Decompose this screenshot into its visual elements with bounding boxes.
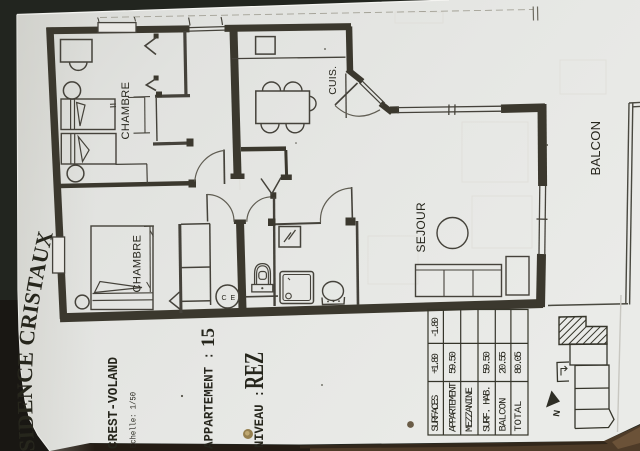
- svg-text:APPARTEMENT :: APPARTEMENT :: [202, 352, 217, 449]
- svg-text:SURFACES: SURFACES: [430, 395, 442, 432]
- svg-text:CHAMBRE: CHAMBRE: [131, 235, 143, 293]
- svg-text:SEJOUR: SEJOUR: [414, 202, 428, 253]
- svg-text:15: 15: [198, 328, 219, 347]
- svg-text:+1.80: +1.80: [430, 353, 442, 374]
- svg-text:MEZZANINE: MEZZANINE: [464, 387, 476, 432]
- svg-text:TOTAL: TOTAL: [513, 401, 525, 432]
- svg-text:REZ: REZ: [239, 352, 269, 389]
- svg-text:Echelle: 1/50: Echelle: 1/50: [129, 392, 139, 448]
- svg-text:BALCON: BALCON: [497, 398, 509, 432]
- svg-text:-1.80: -1.80: [430, 317, 442, 338]
- svg-text:80.05: 80.05: [513, 351, 525, 374]
- svg-text:59.50: 59.50: [481, 351, 493, 374]
- svg-text:CHAMBRE: CHAMBRE: [120, 82, 132, 140]
- svg-text:CREST-VOLAND: CREST-VOLAND: [107, 357, 122, 449]
- svg-text:BALCON: BALCON: [588, 121, 603, 176]
- svg-text:APPARTEMENT: APPARTEMENT: [447, 382, 459, 432]
- svg-text:20.55: 20.55: [497, 351, 509, 374]
- svg-text:NIVEAU :: NIVEAU :: [253, 390, 267, 448]
- svg-text:CE: CE: [222, 295, 240, 302]
- svg-text:SURF. HAB.: SURF. HAB.: [481, 385, 493, 432]
- svg-text:59.50: 59.50: [447, 351, 459, 374]
- svg-text:CUIS.: CUIS.: [327, 66, 339, 95]
